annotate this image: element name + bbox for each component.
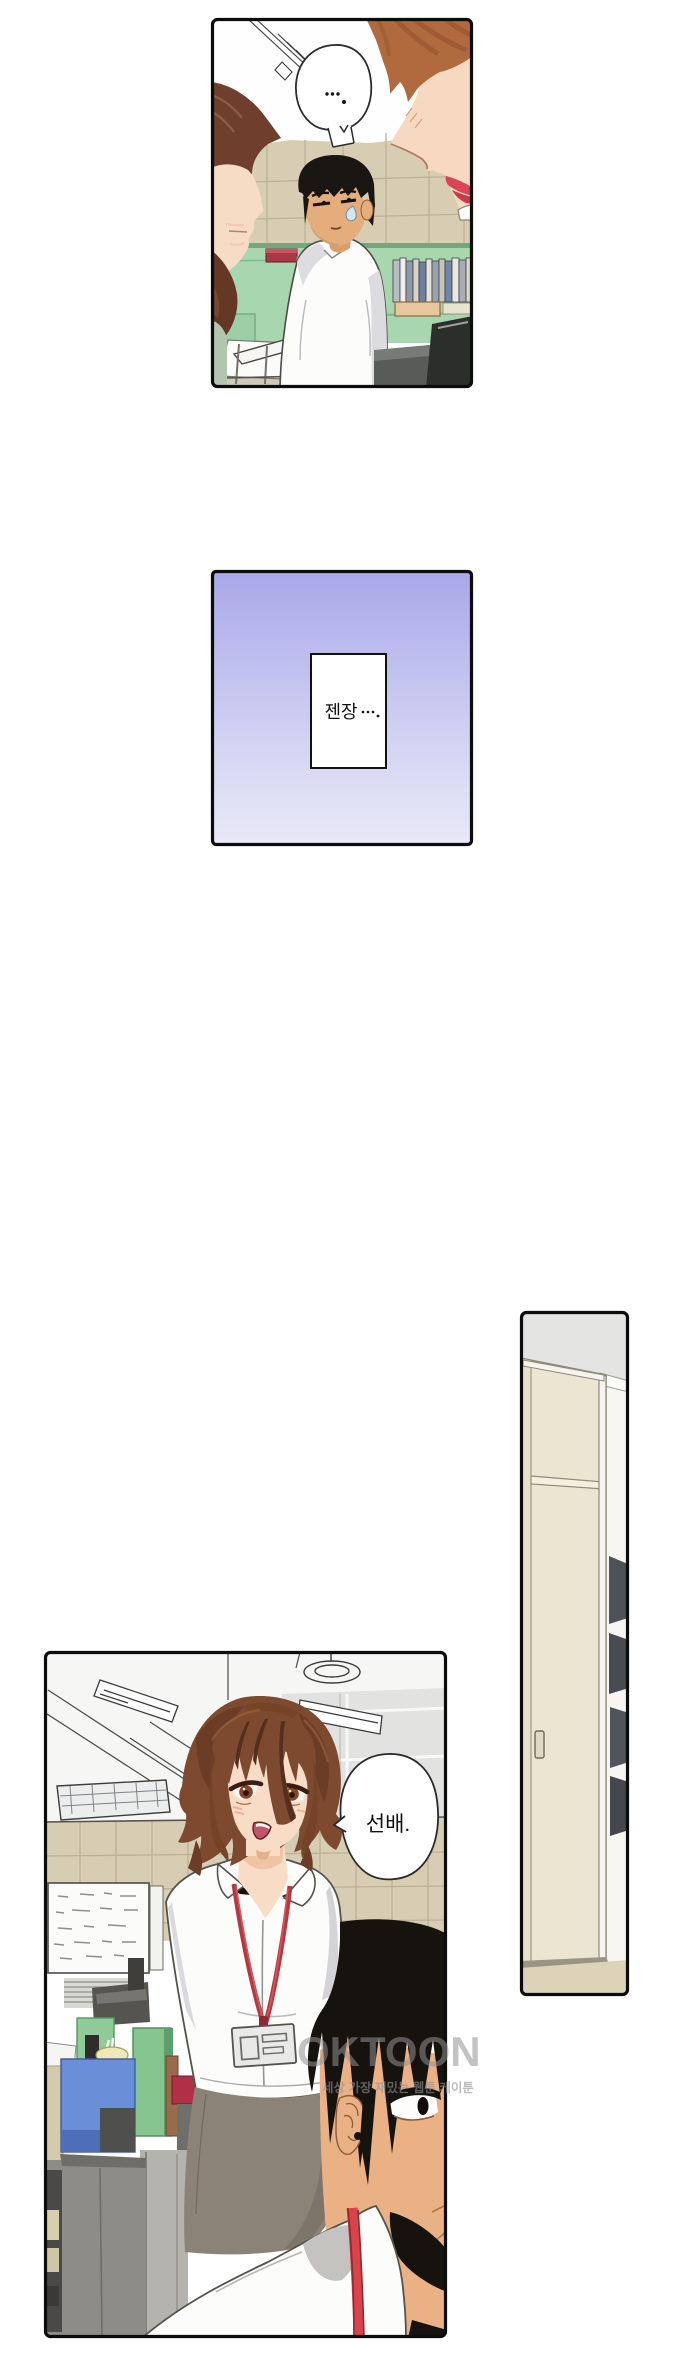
svg-text:젠장: 젠장 [324,702,357,722]
svg-text:선배.: 선배. [366,1813,410,1836]
